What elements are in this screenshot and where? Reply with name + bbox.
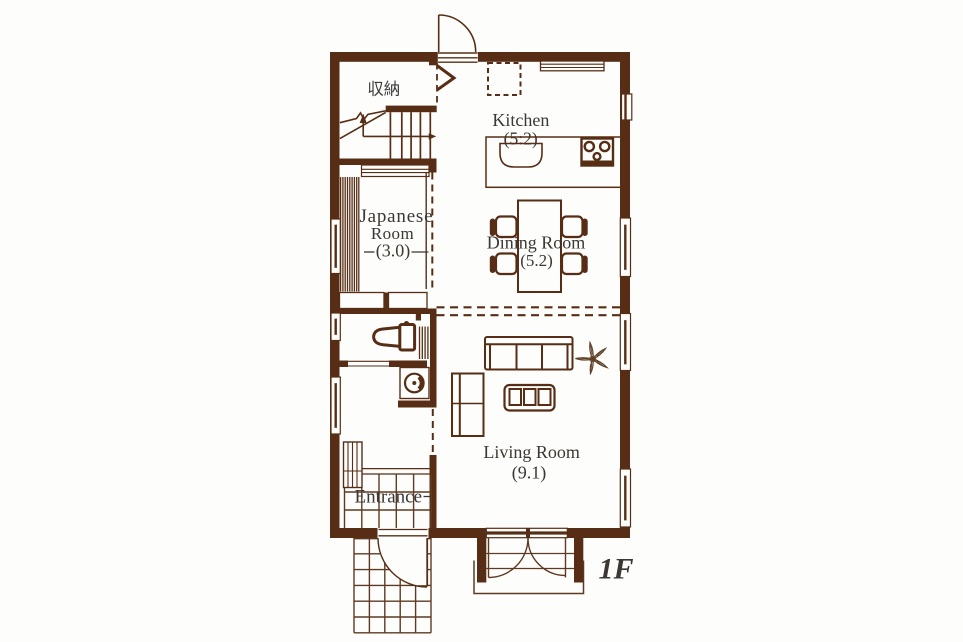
svg-text:(9.1): (9.1) bbox=[512, 463, 547, 484]
svg-text:Dining Room: Dining Room bbox=[487, 233, 586, 253]
svg-text:(5:2): (5:2) bbox=[504, 129, 538, 149]
svg-text:1F: 1F bbox=[598, 553, 633, 586]
svg-text:Living Room: Living Room bbox=[483, 442, 580, 462]
svg-text:(5.2): (5.2) bbox=[520, 251, 553, 270]
svg-text:Kitchen: Kitchen bbox=[492, 110, 549, 130]
svg-text:Entrance: Entrance bbox=[355, 487, 423, 508]
svg-text:(3.0): (3.0) bbox=[376, 241, 411, 262]
svg-text:収納: 収納 bbox=[367, 80, 400, 99]
